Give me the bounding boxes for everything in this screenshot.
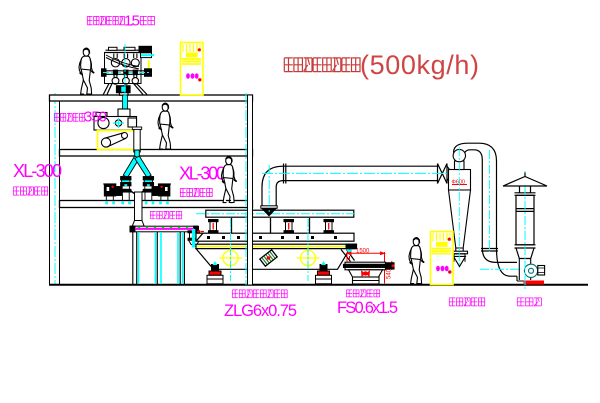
svg-text:1.5: 1.5 [124,13,140,30]
svg-text:FS0.6x1.5: FS0.6x1.5 [337,299,398,317]
svg-text:540: 540 [387,268,393,279]
svg-text:XL-300: XL-300 [13,161,62,181]
svg-text:XL-300: XL-300 [179,164,226,184]
svg-text:1500: 1500 [356,249,370,255]
svg-text:Φ600: Φ600 [452,180,466,186]
svg-text:(500kg/h): (500kg/h) [360,50,479,80]
svg-text:350: 350 [84,109,107,126]
svg-text:ZLG6x0.75: ZLG6x0.75 [224,302,297,320]
